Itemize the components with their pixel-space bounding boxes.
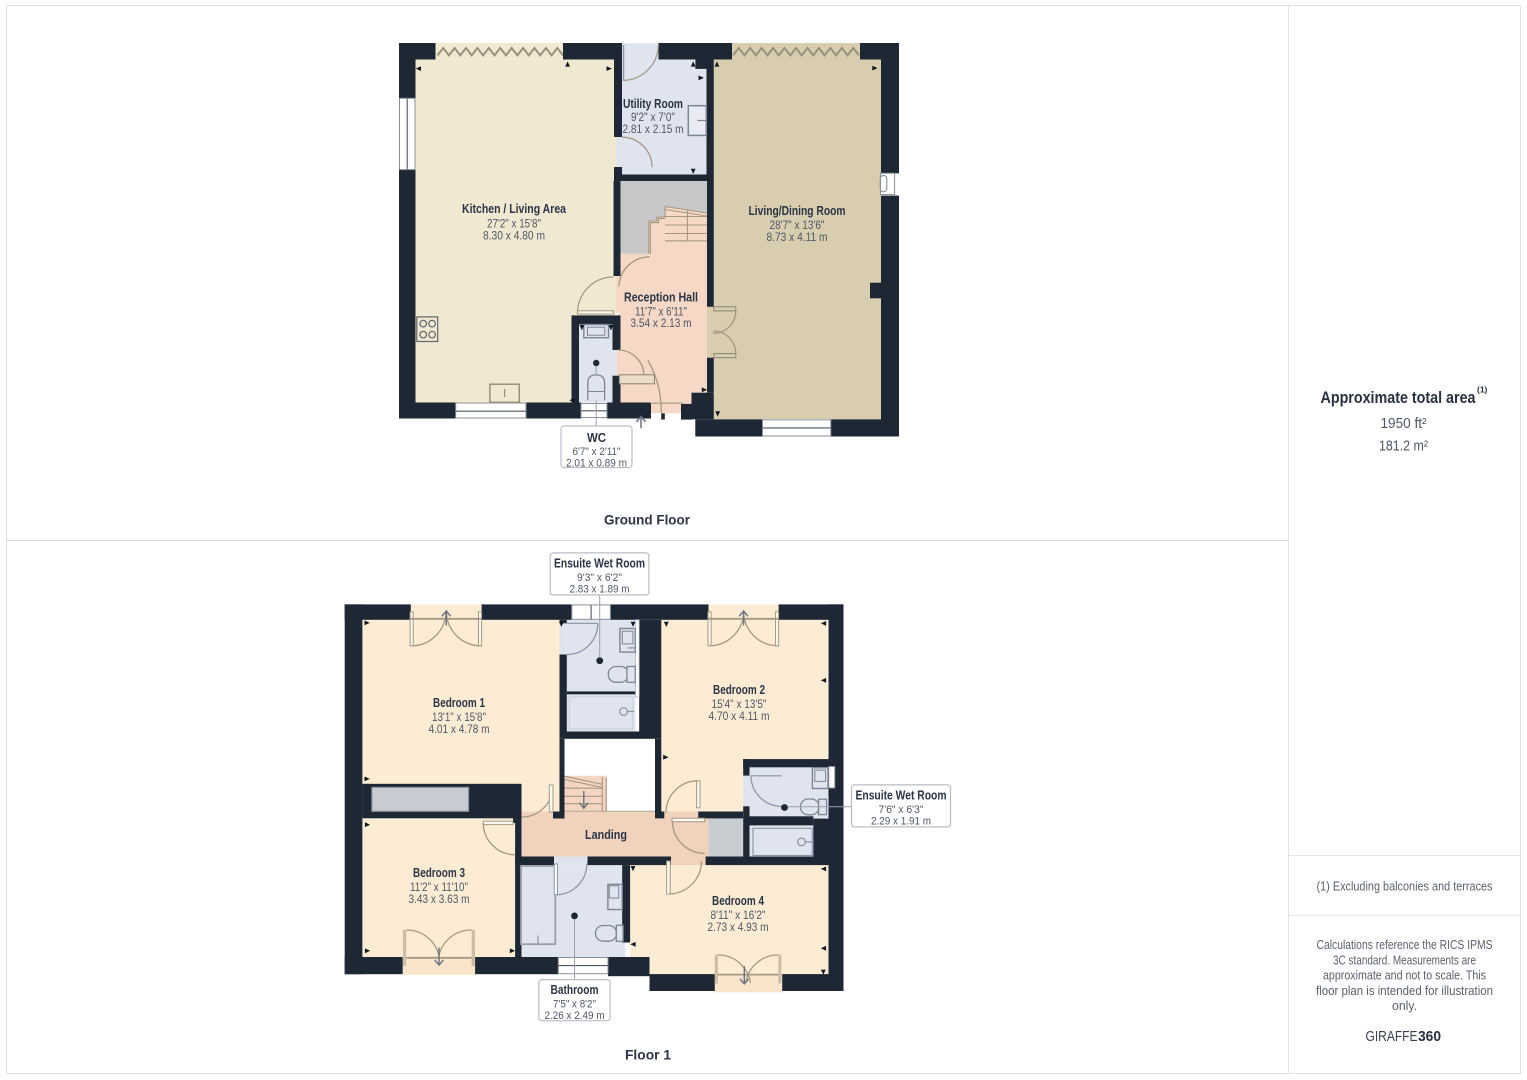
svg-text:9'3" x 6'2": 9'3" x 6'2" bbox=[577, 572, 622, 584]
svg-text:8.30 x 4.80 m: 8.30 x 4.80 m bbox=[483, 231, 545, 243]
svg-text:2.73 x 4.93 m: 2.73 x 4.93 m bbox=[708, 922, 769, 934]
svg-text:13'1" x 15'8": 13'1" x 15'8" bbox=[432, 712, 486, 724]
svg-text:Landing: Landing bbox=[585, 827, 627, 842]
svg-text:4.01 x 4.78 m: 4.01 x 4.78 m bbox=[429, 724, 490, 736]
svg-text:28'7" x 13'6": 28'7" x 13'6" bbox=[770, 220, 825, 232]
svg-text:Living/Dining Room: Living/Dining Room bbox=[749, 203, 846, 218]
svg-text:7'6" x 6'3": 7'6" x 6'3" bbox=[879, 804, 924, 816]
svg-text:11'2" x 11'10": 11'2" x 11'10" bbox=[410, 882, 468, 894]
svg-text:8.73 x 4.11 m: 8.73 x 4.11 m bbox=[767, 232, 828, 244]
svg-text:Floor 1: Floor 1 bbox=[625, 1047, 671, 1063]
svg-text:3.43 x 3.63 m: 3.43 x 3.63 m bbox=[409, 894, 470, 906]
svg-text:2.01 x 0.89 m: 2.01 x 0.89 m bbox=[566, 458, 627, 470]
svg-text:Ensuite Wet Room: Ensuite Wet Room bbox=[554, 557, 645, 571]
svg-text:Utility Room: Utility Room bbox=[623, 96, 683, 111]
svg-text:Bedroom 2: Bedroom 2 bbox=[713, 682, 765, 697]
svg-text:27'2" x 15'8": 27'2" x 15'8" bbox=[487, 219, 541, 231]
svg-text:6'7" x 2'11": 6'7" x 2'11" bbox=[573, 446, 621, 458]
svg-text:11'7" x 6'11": 11'7" x 6'11" bbox=[635, 307, 687, 319]
svg-text:Ground Floor: Ground Floor bbox=[604, 512, 691, 528]
svg-text:7'5" x 8'2": 7'5" x 8'2" bbox=[553, 999, 596, 1011]
svg-text:WC: WC bbox=[587, 430, 607, 445]
svg-text:15'4" x 13'5": 15'4" x 13'5" bbox=[712, 699, 767, 711]
svg-text:Bedroom 3: Bedroom 3 bbox=[413, 865, 465, 880]
svg-text:2.26 x 2.49 m: 2.26 x 2.49 m bbox=[545, 1010, 605, 1022]
svg-text:Bathroom: Bathroom bbox=[551, 983, 599, 997]
svg-text:8'11" x 16'2": 8'11" x 16'2" bbox=[711, 910, 766, 922]
svg-text:Kitchen / Living Area: Kitchen / Living Area bbox=[462, 201, 567, 216]
svg-text:2.29 x 1.91 m: 2.29 x 1.91 m bbox=[871, 816, 931, 828]
svg-text:Bedroom 1: Bedroom 1 bbox=[433, 695, 485, 710]
svg-text:Bedroom 4: Bedroom 4 bbox=[712, 893, 765, 908]
svg-text:9'2" x 7'0": 9'2" x 7'0" bbox=[631, 112, 675, 124]
svg-text:3.54 x 2.13 m: 3.54 x 2.13 m bbox=[631, 318, 692, 330]
svg-text:2.81 x 2.15 m: 2.81 x 2.15 m bbox=[623, 124, 684, 136]
svg-text:2.83 x 1.89 m: 2.83 x 1.89 m bbox=[570, 584, 630, 596]
svg-text:4.70 x 4.11 m: 4.70 x 4.11 m bbox=[709, 711, 770, 723]
svg-text:Ensuite Wet Room: Ensuite Wet Room bbox=[856, 789, 947, 803]
svg-text:Reception Hall: Reception Hall bbox=[624, 290, 698, 305]
